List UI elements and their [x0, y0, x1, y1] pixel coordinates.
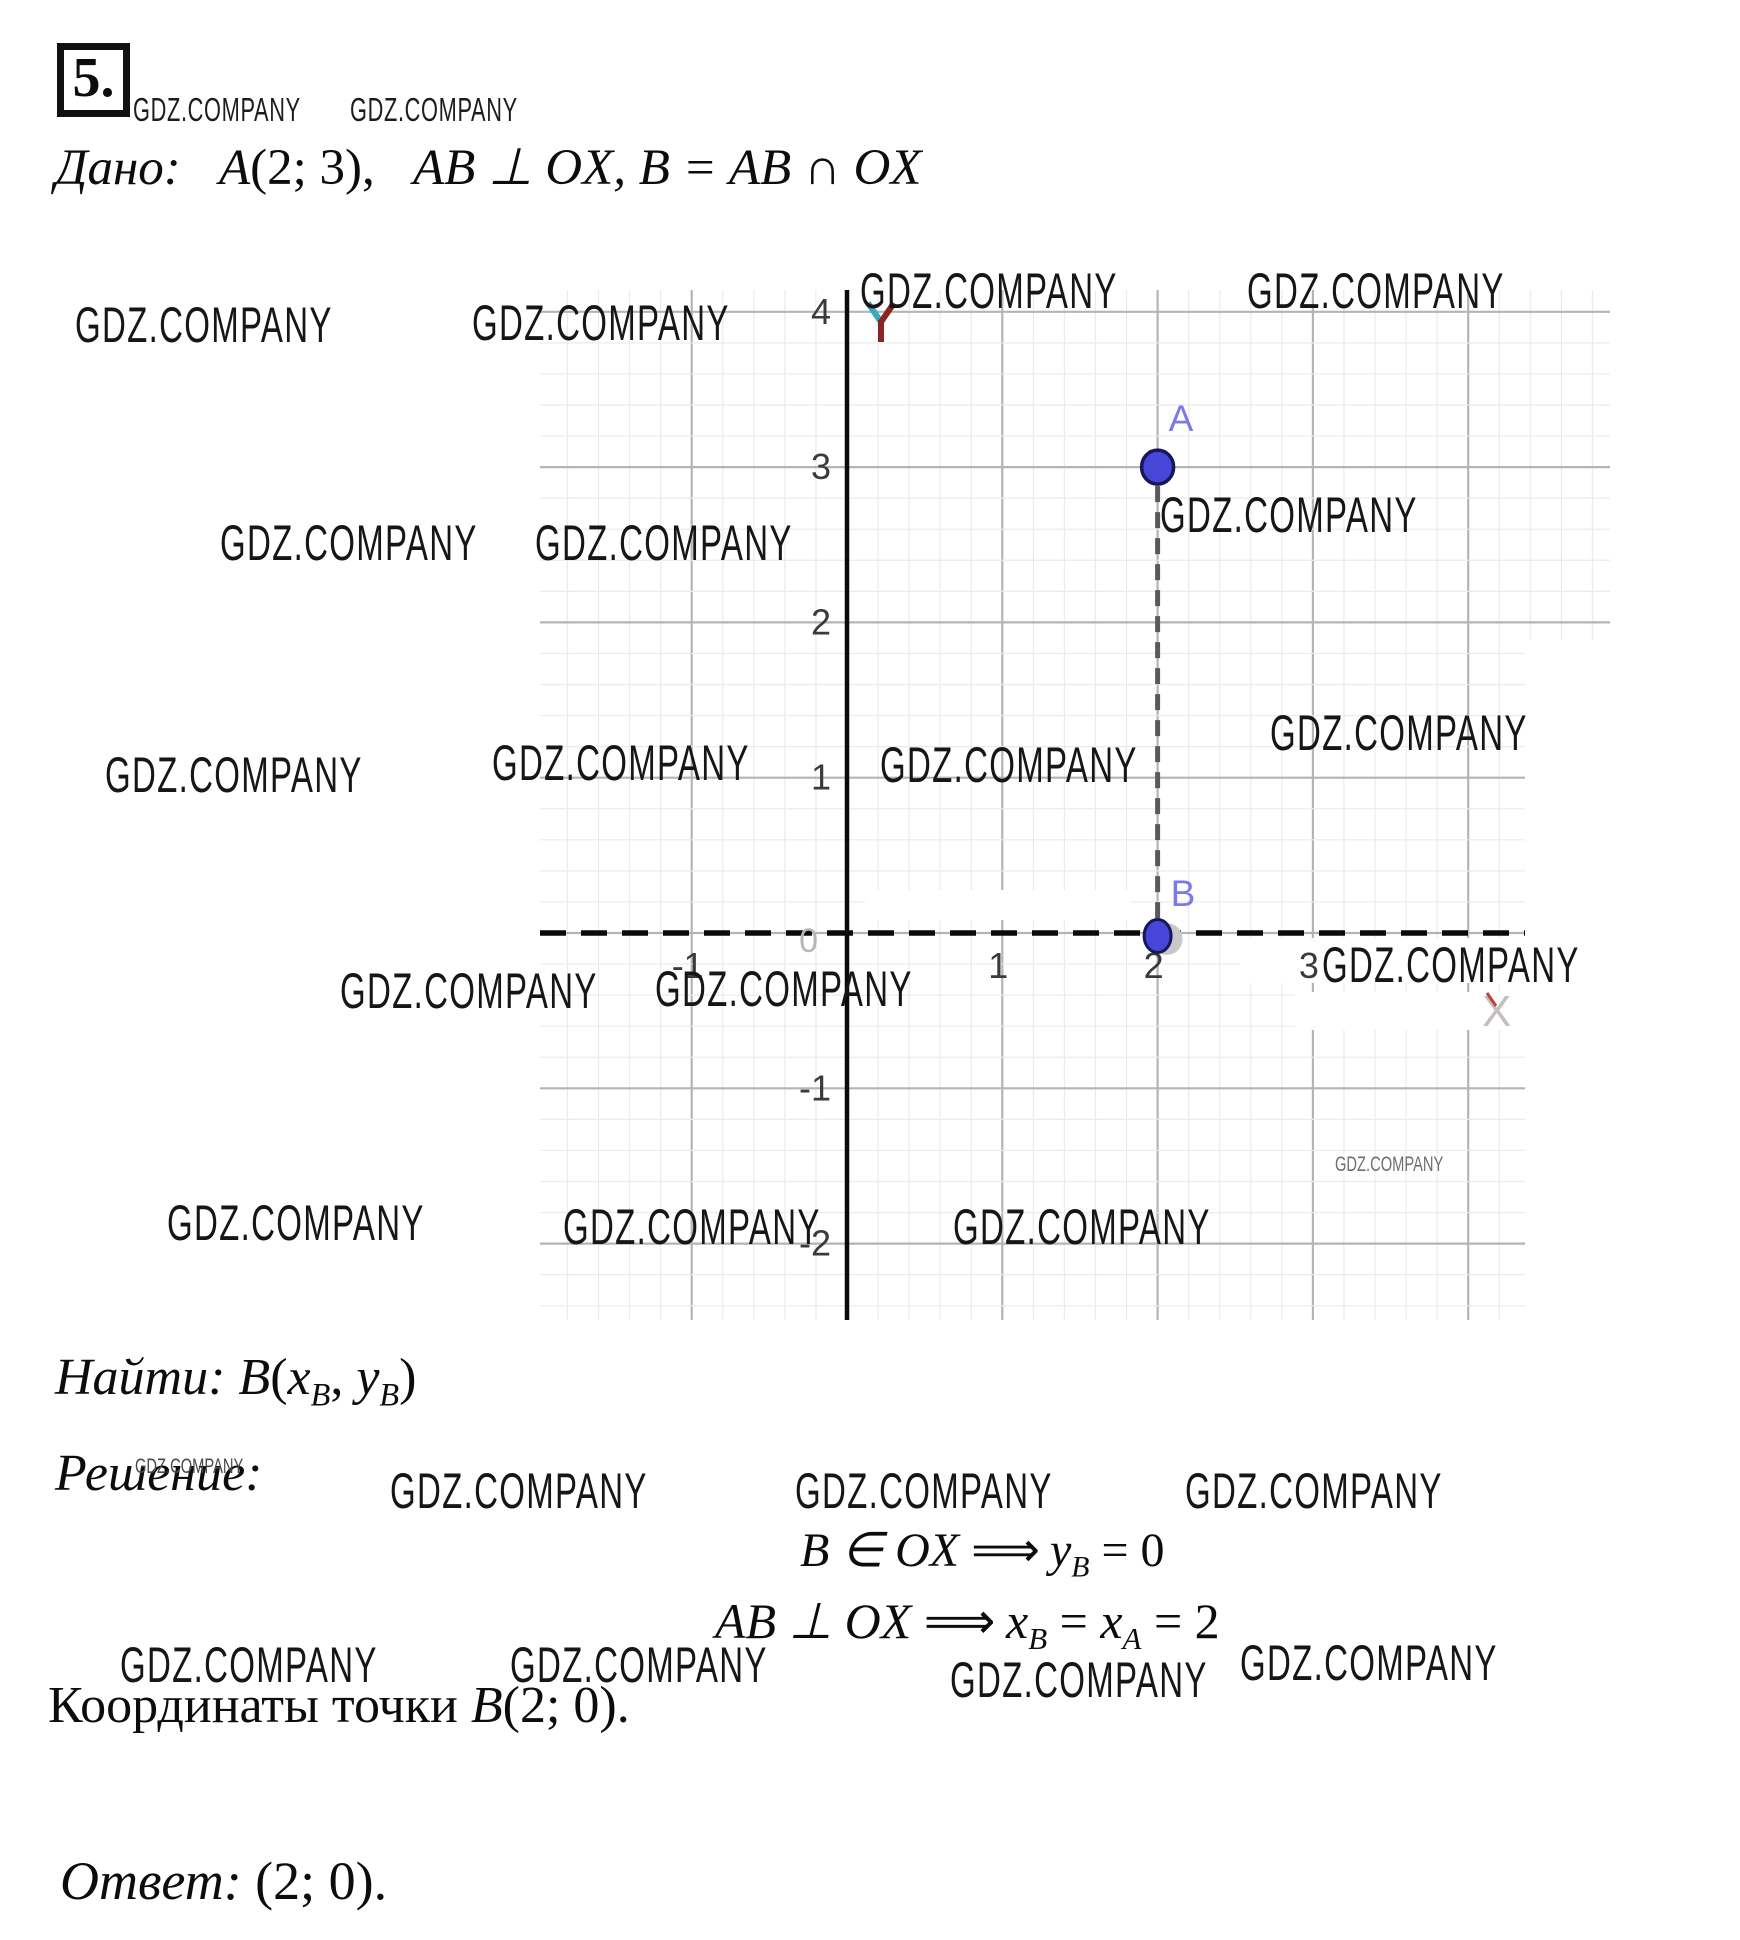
solution-label: Решение:	[55, 1444, 263, 1503]
eq2-lhs: AB ⊥ OX	[715, 1593, 911, 1649]
watermark: GDZ.COMPANY	[390, 1466, 648, 1516]
svg-text:-1: -1	[799, 1067, 831, 1108]
watermark: GDZ.COMPANY	[950, 1655, 1208, 1705]
svg-text:1: 1	[811, 757, 831, 798]
problem-number-box: 5.	[57, 43, 130, 117]
implies-icon: ⟹	[971, 1524, 1038, 1577]
coordinate-plane-svg: 4321-1-2-11230ABX	[540, 290, 1610, 1320]
given-label: Дано:	[55, 140, 181, 196]
watermark: GDZ.COMPANY	[105, 750, 363, 800]
svg-text:1: 1	[988, 945, 1008, 986]
eq1-rhs: = 0	[1101, 1524, 1164, 1577]
svg-text:-1: -1	[672, 945, 704, 986]
svg-text:3: 3	[1299, 945, 1319, 986]
given-line: Дано: A(2; 3), AB ⊥ OX, B = AB ∩ OX	[55, 138, 922, 197]
given-point-coords: (2; 3),	[250, 140, 375, 196]
find-label: Найти:	[55, 1349, 225, 1406]
svg-text:B: B	[1171, 873, 1196, 914]
eq2-rhs: = 2	[1154, 1593, 1220, 1649]
watermark: GDZ.COMPANY	[1185, 1466, 1443, 1516]
given-conditions: AB ⊥ OX, B = AB ∩ OX	[413, 140, 921, 196]
watermark: GDZ.COMPANY	[1240, 1638, 1498, 1688]
watermark: GDZ.COMPANY	[350, 93, 518, 126]
svg-text:A: A	[1169, 398, 1194, 439]
coordinate-plane: 4321-1-2-11230ABX	[540, 290, 1610, 1320]
watermark: GDZ.COMPANY	[795, 1466, 1053, 1516]
equation-2: AB ⊥ OX ⟹ xB = xA = 2	[715, 1592, 1220, 1657]
coordinates-statement: Координаты точки B(2; 0).	[48, 1676, 630, 1735]
worksheet-page: 5. Дано: A(2; 3), AB ⊥ OX, B = AB ∩ OX 4…	[0, 0, 1740, 1940]
answer-line: Ответ: (2; 0).	[60, 1850, 387, 1912]
find-line: Найти: B(xB, yB)	[55, 1348, 416, 1413]
watermark: GDZ.COMPANY	[133, 93, 301, 126]
svg-text:4: 4	[811, 291, 831, 332]
watermark: GDZ.COMPANY	[167, 1198, 425, 1248]
svg-text:2: 2	[811, 601, 831, 642]
equation-1: B ∈ OX ⟹ yB = 0	[800, 1522, 1165, 1585]
answer-value: (2; 0).	[255, 1851, 387, 1911]
implies-icon: ⟹	[924, 1593, 994, 1649]
problem-number: 5.	[73, 50, 115, 106]
find-point: B	[238, 1349, 270, 1406]
svg-text:3: 3	[811, 446, 831, 487]
eq1-lhs: B ∈ OX	[800, 1524, 959, 1577]
svg-text:-2: -2	[799, 1223, 831, 1264]
watermark: GDZ.COMPANY	[220, 518, 478, 568]
svg-text:0: 0	[799, 922, 818, 960]
given-point: A	[219, 140, 250, 196]
watermark: GDZ.COMPANY	[75, 300, 333, 350]
answer-label: Ответ:	[60, 1851, 242, 1911]
